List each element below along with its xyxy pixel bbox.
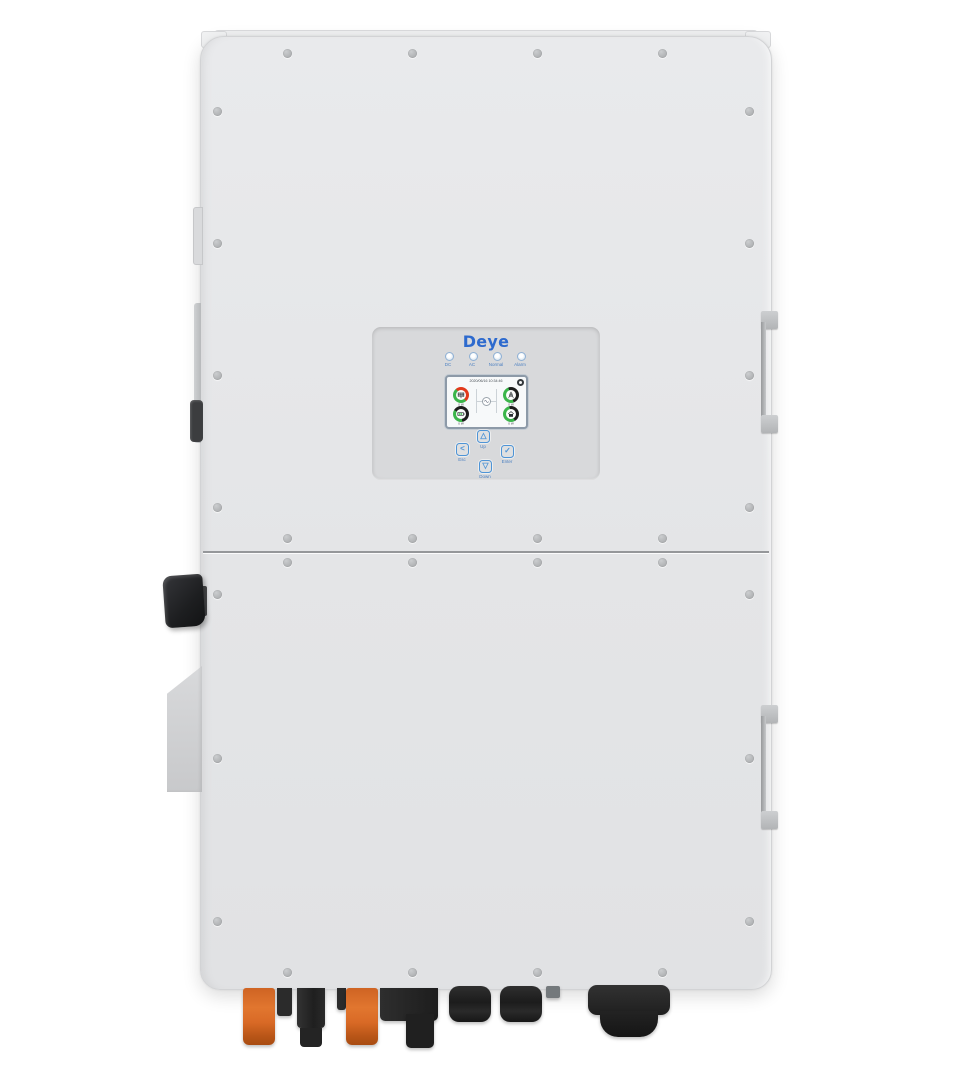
screw: [658, 49, 667, 58]
brand-logo: Deye: [372, 332, 600, 351]
screw: [745, 371, 754, 380]
right-handle-mount: [761, 811, 778, 829]
lcd-screen: 2020/06/16 10:34:46: [445, 375, 528, 429]
ac-led: [469, 352, 478, 361]
pv-connector-stub-2: [337, 988, 346, 1010]
battery-value: 0 W: [450, 422, 473, 425]
pv-connector-stub-1: [277, 988, 292, 1016]
screw: [283, 534, 292, 543]
down-button-label: Down: [470, 474, 500, 479]
screw: [533, 558, 542, 567]
cable-gland-2: [500, 986, 542, 1022]
screw: [658, 534, 667, 543]
terminal-block-lower: [406, 1014, 434, 1048]
pv-connector-black: [297, 988, 325, 1028]
enter-button[interactable]: ✓: [501, 445, 514, 458]
up-icon: △: [480, 431, 486, 440]
screw: [533, 534, 542, 543]
screw: [283, 558, 292, 567]
inverter-node-icon: [482, 397, 491, 406]
left-bracket: [167, 666, 202, 792]
deye-hybrid-inverter-photo: Deye DC AC Normal Alarm 2020/06/16 10:34…: [0, 0, 970, 1080]
solar-panel-icon: [456, 390, 466, 400]
load-gauge: [503, 406, 519, 422]
load-value: 0 W: [500, 422, 523, 425]
screw: [745, 754, 754, 763]
screw: [213, 371, 222, 380]
screw: [213, 917, 222, 926]
case-seam: [203, 551, 769, 553]
normal-led: [493, 352, 502, 361]
side-tab: [193, 207, 203, 265]
dc-led: [445, 352, 454, 361]
up-button[interactable]: △: [477, 430, 490, 443]
pv-value: 0 W: [450, 403, 473, 406]
screw: [408, 558, 417, 567]
screw: [658, 968, 667, 977]
alarm-led: [517, 352, 526, 361]
up-button-label: Up: [468, 444, 498, 449]
screw: [745, 917, 754, 926]
down-button[interactable]: ▽: [479, 460, 492, 473]
screw: [283, 968, 292, 977]
grid-tower-icon: [506, 390, 516, 400]
battery-icon: [456, 409, 466, 419]
screw: [533, 968, 542, 977]
right-handle-mount: [761, 415, 778, 433]
cable-gland-1: [449, 986, 491, 1022]
dc-switch-knob[interactable]: [162, 574, 206, 629]
control-panel: Deye DC AC Normal Alarm 2020/06/16 10:34…: [372, 327, 600, 480]
grid-gauge: [503, 387, 519, 403]
screw: [745, 239, 754, 248]
grid-value: 0 W: [500, 403, 523, 406]
alarm-led-label: Alarm: [505, 362, 535, 367]
lcd-datetime: 2020/06/16 10:34:46: [455, 379, 518, 383]
cable-stub: [546, 986, 560, 998]
inverter-case: Deye DC AC Normal Alarm 2020/06/16 10:34…: [200, 36, 772, 990]
esc-button-label: Esc: [447, 457, 477, 462]
settings-gear-icon: [517, 379, 524, 386]
down-icon: ▽: [482, 461, 488, 470]
screw: [213, 590, 222, 599]
main-cable-gland-dome: [600, 1011, 658, 1037]
pv-gauge: [453, 387, 469, 403]
screw: [745, 503, 754, 512]
pv-connector-orange-1: [243, 988, 275, 1045]
right-handle[interactable]: [761, 322, 766, 422]
pv-connector-orange-2: [346, 988, 378, 1045]
battery-gauge: [453, 406, 469, 422]
screw: [213, 239, 222, 248]
right-handle[interactable]: [761, 716, 766, 816]
screw: [745, 590, 754, 599]
enter-button-label: Enter: [492, 459, 522, 464]
check-icon: ✓: [504, 446, 511, 455]
screw: [213, 503, 222, 512]
home-load-icon: [506, 409, 516, 419]
screw: [283, 49, 292, 58]
screw: [408, 968, 417, 977]
screw: [408, 534, 417, 543]
screw: [533, 49, 542, 58]
back-arrow-icon: <: [460, 444, 465, 453]
screw: [745, 107, 754, 116]
screw: [658, 558, 667, 567]
screw: [213, 107, 222, 116]
left-handle-grip[interactable]: [190, 400, 203, 442]
screw: [213, 754, 222, 763]
screw: [408, 49, 417, 58]
